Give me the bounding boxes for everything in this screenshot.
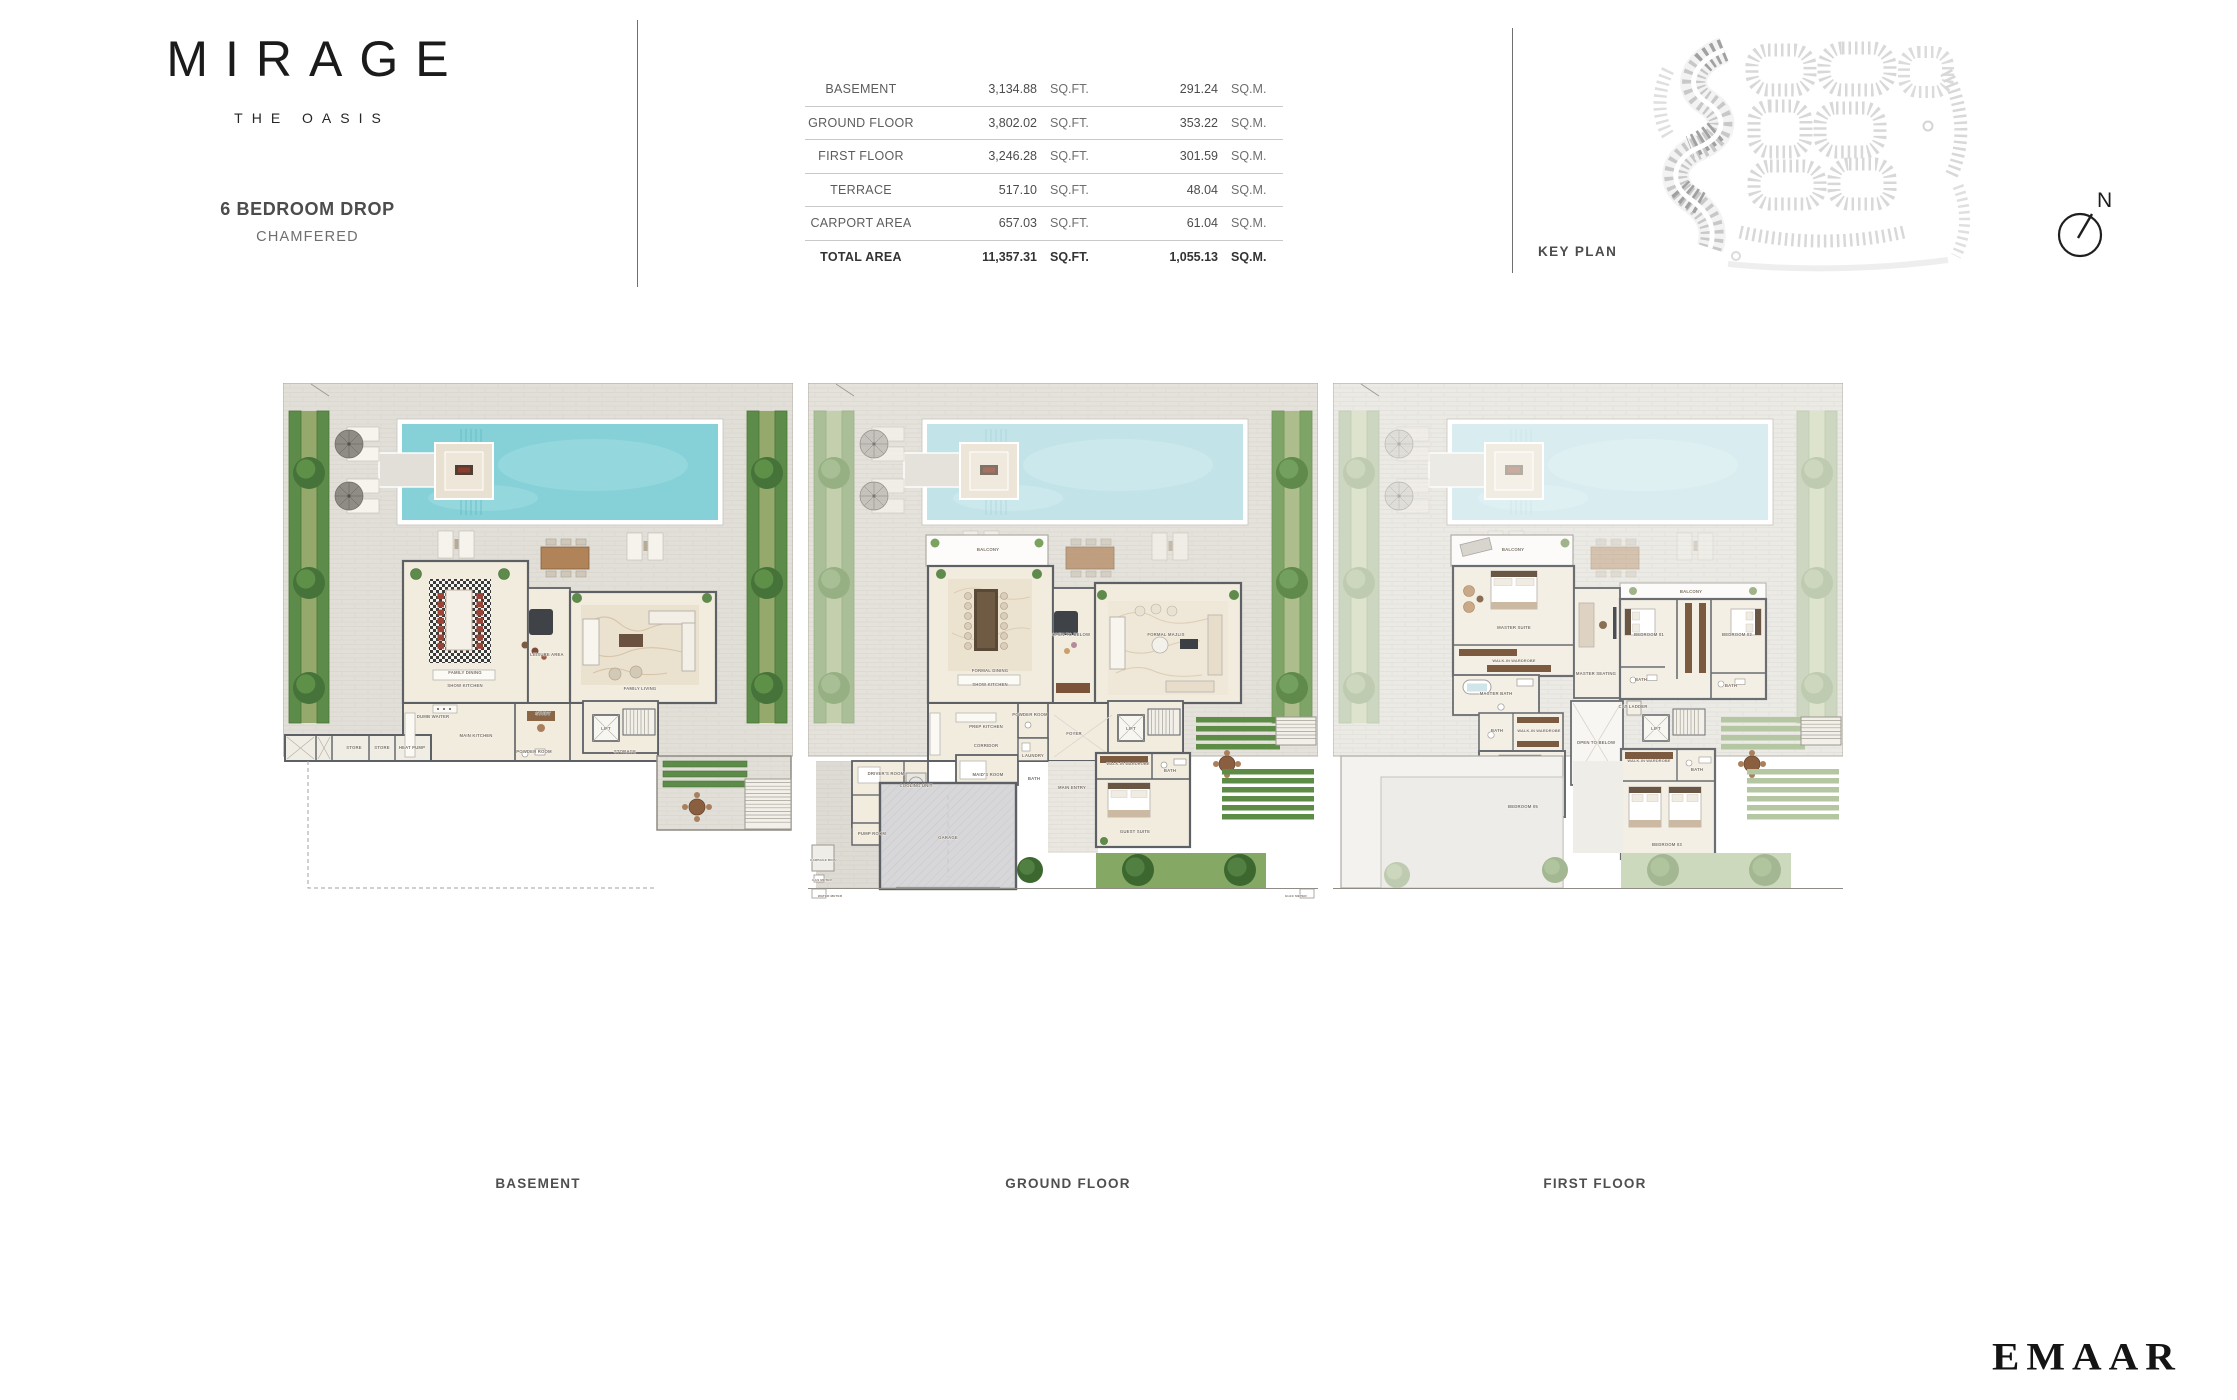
unit-subtitle: CHAMFERED xyxy=(135,229,480,245)
svg-text:STORAGE: STORAGE xyxy=(614,749,636,754)
svg-text:BALCONY: BALCONY xyxy=(1680,589,1702,594)
svg-text:WALK-IN WARDROBE: WALK-IN WARDROBE xyxy=(1106,761,1150,766)
svg-text:LIFT: LIFT xyxy=(601,726,611,731)
row-sqm-unit: SQ.M. xyxy=(1218,183,1283,197)
brand-logo: MIRAGE xyxy=(135,30,497,88)
row-sqft-unit: SQ.FT. xyxy=(1037,250,1099,264)
area-row-ground: GROUND FLOOR 3,802.02 SQ.FT. 353.22 SQ.M… xyxy=(805,107,1283,141)
svg-text:FORMAL DINING: FORMAL DINING xyxy=(972,668,1009,673)
floor-plan-basement: FAMILY DININGSHOW KITCHENLEISURE AREAFAM… xyxy=(283,383,793,928)
row-sqft-unit: SQ.FT. xyxy=(1037,183,1099,197)
svg-text:MAIN ENTRY: MAIN ENTRY xyxy=(1058,785,1086,790)
row-sqm-unit: SQ.M. xyxy=(1218,116,1283,130)
row-sqm-unit: SQ.M. xyxy=(1218,149,1283,163)
svg-text:WALK-IN WARDROBE: WALK-IN WARDROBE xyxy=(1627,758,1671,763)
svg-text:BALCONY: BALCONY xyxy=(977,547,999,552)
svg-text:STUDY: STUDY xyxy=(535,711,550,716)
svg-text:GARBAGE BINS: GARBAGE BINS xyxy=(810,858,836,862)
row-sqft: 517.10 xyxy=(917,183,1037,197)
svg-text:LAUNDRY: LAUNDRY xyxy=(1022,753,1044,758)
svg-text:MAID'S ROOM: MAID'S ROOM xyxy=(972,772,1003,777)
svg-text:COOLING UNIT: COOLING UNIT xyxy=(899,783,932,788)
floor-plan-ground: BALCONYFORMAL DININGSHOW KITCHENOPEN TO … xyxy=(808,383,1318,928)
compass-icon: N xyxy=(2045,183,2120,263)
svg-text:FORMAL MAJLIS: FORMAL MAJLIS xyxy=(1147,632,1184,637)
svg-text:PREP KITCHEN: PREP KITCHEN xyxy=(969,724,1003,729)
row-sqm-unit: SQ.M. xyxy=(1218,82,1283,96)
svg-text:MASTER SUITE: MASTER SUITE xyxy=(1497,625,1531,630)
plan-caption-first: FIRST FLOOR xyxy=(1445,1176,1745,1191)
row-sqft-unit: SQ.FT. xyxy=(1037,116,1099,130)
row-sqft: 657.03 xyxy=(917,216,1037,230)
area-row-total: TOTAL AREA 11,357.31 SQ.FT. 1,055.13 SQ.… xyxy=(805,241,1283,274)
row-sqm: 353.22 xyxy=(1099,116,1218,130)
row-sqft: 3,134.88 xyxy=(917,82,1037,96)
plan-caption-ground: GROUND FLOOR xyxy=(918,1176,1218,1191)
row-sqm: 301.59 xyxy=(1099,149,1218,163)
svg-text:LEISURE AREA: LEISURE AREA xyxy=(530,652,564,657)
svg-text:STORE: STORE xyxy=(374,745,389,750)
svg-text:BATH: BATH xyxy=(1164,768,1176,773)
svg-text:WALK-IN WARDROBE: WALK-IN WARDROBE xyxy=(1517,728,1561,733)
unit-block: 6 BEDROOM DROP CHAMFERED xyxy=(135,199,480,245)
svg-text:GAS METER: GAS METER xyxy=(812,878,832,882)
area-row-first: FIRST FLOOR 3,246.28 SQ.FT. 301.59 SQ.M. xyxy=(805,140,1283,174)
svg-text:STORE: STORE xyxy=(346,745,361,750)
svg-text:LIFT: LIFT xyxy=(1126,726,1136,731)
svg-text:OPEN TO BELOW: OPEN TO BELOW xyxy=(1052,632,1091,637)
svg-text:MAIN KITCHEN: MAIN KITCHEN xyxy=(459,733,492,738)
svg-text:LIFT: LIFT xyxy=(1651,726,1661,731)
row-label: TOTAL AREA xyxy=(805,250,917,264)
svg-text:MASTER BATH: MASTER BATH xyxy=(1480,691,1513,696)
row-label: BASEMENT xyxy=(805,82,917,96)
svg-text:BATH: BATH xyxy=(1028,776,1040,781)
key-plan-label: KEY PLAN xyxy=(1538,244,1628,259)
brand-block: MIRAGE THE OASIS xyxy=(135,30,480,126)
svg-text:SHOW KITCHEN: SHOW KITCHEN xyxy=(972,682,1007,687)
svg-text:CORRIDOR: CORRIDOR xyxy=(974,743,999,748)
svg-text:CAT LADDER: CAT LADDER xyxy=(1618,704,1648,709)
row-sqm-unit: SQ.M. xyxy=(1218,250,1283,264)
svg-text:SHOW KITCHEN: SHOW KITCHEN xyxy=(447,683,482,688)
row-sqft-unit: SQ.FT. xyxy=(1037,216,1099,230)
svg-text:GUEST SUITE: GUEST SUITE xyxy=(1120,829,1150,834)
svg-text:BATH: BATH xyxy=(1491,728,1503,733)
row-sqft-unit: SQ.FT. xyxy=(1037,149,1099,163)
row-sqm-unit: SQ.M. xyxy=(1218,216,1283,230)
area-row-terrace: TERRACE 517.10 SQ.FT. 48.04 SQ.M. xyxy=(805,174,1283,208)
svg-text:BATH: BATH xyxy=(1691,767,1703,772)
svg-text:WALK-IN WARDROBE: WALK-IN WARDROBE xyxy=(1492,658,1536,663)
svg-text:GARAGE: GARAGE xyxy=(938,835,958,840)
svg-text:WATER METER: WATER METER xyxy=(818,894,843,898)
row-sqm: 291.24 xyxy=(1099,82,1218,96)
row-sqft-unit: SQ.FT. xyxy=(1037,82,1099,96)
svg-text:FOYER: FOYER xyxy=(1066,731,1082,736)
brochure-page: MIRAGE THE OASIS 6 BEDROOM DROP CHAMFERE… xyxy=(0,0,2237,1400)
compass-n-label: N xyxy=(2097,189,2112,212)
floor-plan-basement-drawing: FAMILY DININGSHOW KITCHENLEISURE AREAFAM… xyxy=(283,383,793,923)
developer-logo: EMAAR xyxy=(1992,1333,2182,1379)
row-label: CARPORT AREA xyxy=(805,216,917,230)
area-table: BASEMENT 3,134.88 SQ.FT. 291.24 SQ.M. GR… xyxy=(805,73,1283,273)
floor-plan-first-drawing: BALCONYMASTER SUITEWALK-IN WARDROBEMASTE… xyxy=(1333,383,1843,923)
svg-text:BATH: BATH xyxy=(1635,677,1647,682)
area-row-basement: BASEMENT 3,134.88 SQ.FT. 291.24 SQ.M. xyxy=(805,73,1283,107)
svg-text:BEDROOM 01: BEDROOM 01 xyxy=(1634,632,1664,637)
svg-text:POWDER ROOM: POWDER ROOM xyxy=(516,749,552,754)
row-label: TERRACE xyxy=(805,183,917,197)
row-label: FIRST FLOOR xyxy=(805,149,917,163)
svg-text:BALCONY: BALCONY xyxy=(1502,547,1524,552)
floor-plan-ground-drawing: BALCONYFORMAL DININGSHOW KITCHENOPEN TO … xyxy=(808,383,1318,923)
row-sqm: 48.04 xyxy=(1099,183,1218,197)
svg-text:HEAT PUMP: HEAT PUMP xyxy=(399,745,425,750)
key-plan-map xyxy=(1628,36,1980,272)
unit-title: 6 BEDROOM DROP xyxy=(135,199,480,220)
plan-caption-basement: BASEMENT xyxy=(388,1176,688,1191)
row-sqft: 3,246.28 xyxy=(917,149,1037,163)
row-sqm: 61.04 xyxy=(1099,216,1218,230)
area-row-carport: CARPORT AREA 657.03 SQ.FT. 61.04 SQ.M. xyxy=(805,207,1283,241)
row-label: GROUND FLOOR xyxy=(805,116,917,130)
header-divider-left xyxy=(637,20,638,287)
brand-tagline: THE OASIS xyxy=(135,110,489,126)
svg-text:DRIVER'S ROOM: DRIVER'S ROOM xyxy=(868,771,905,776)
svg-text:OPEN TO BELOW: OPEN TO BELOW xyxy=(1577,740,1616,745)
svg-text:BEDROOM 02: BEDROOM 02 xyxy=(1722,632,1752,637)
svg-text:MASTER SEATING: MASTER SEATING xyxy=(1576,671,1617,676)
svg-text:BATH: BATH xyxy=(1725,683,1737,688)
svg-text:FAMILY LIVING: FAMILY LIVING xyxy=(624,686,657,691)
svg-text:BEDROOM 03: BEDROOM 03 xyxy=(1652,842,1682,847)
svg-text:FAMILY DINING: FAMILY DINING xyxy=(448,670,482,675)
floor-plan-first: BALCONYMASTER SUITEWALK-IN WARDROBEMASTE… xyxy=(1333,383,1843,928)
svg-text:DUMB WAITER: DUMB WAITER xyxy=(417,714,450,719)
svg-text:PUMP ROOM: PUMP ROOM xyxy=(858,831,887,836)
header-divider-right xyxy=(1512,28,1513,273)
row-sqft: 11,357.31 xyxy=(917,250,1037,264)
svg-text:BEDROOM 05: BEDROOM 05 xyxy=(1508,804,1538,809)
svg-text:ELEC METER: ELEC METER xyxy=(1285,894,1307,898)
svg-text:POWDER ROOM: POWDER ROOM xyxy=(1012,712,1048,717)
row-sqm: 1,055.13 xyxy=(1099,250,1218,264)
row-sqft: 3,802.02 xyxy=(917,116,1037,130)
